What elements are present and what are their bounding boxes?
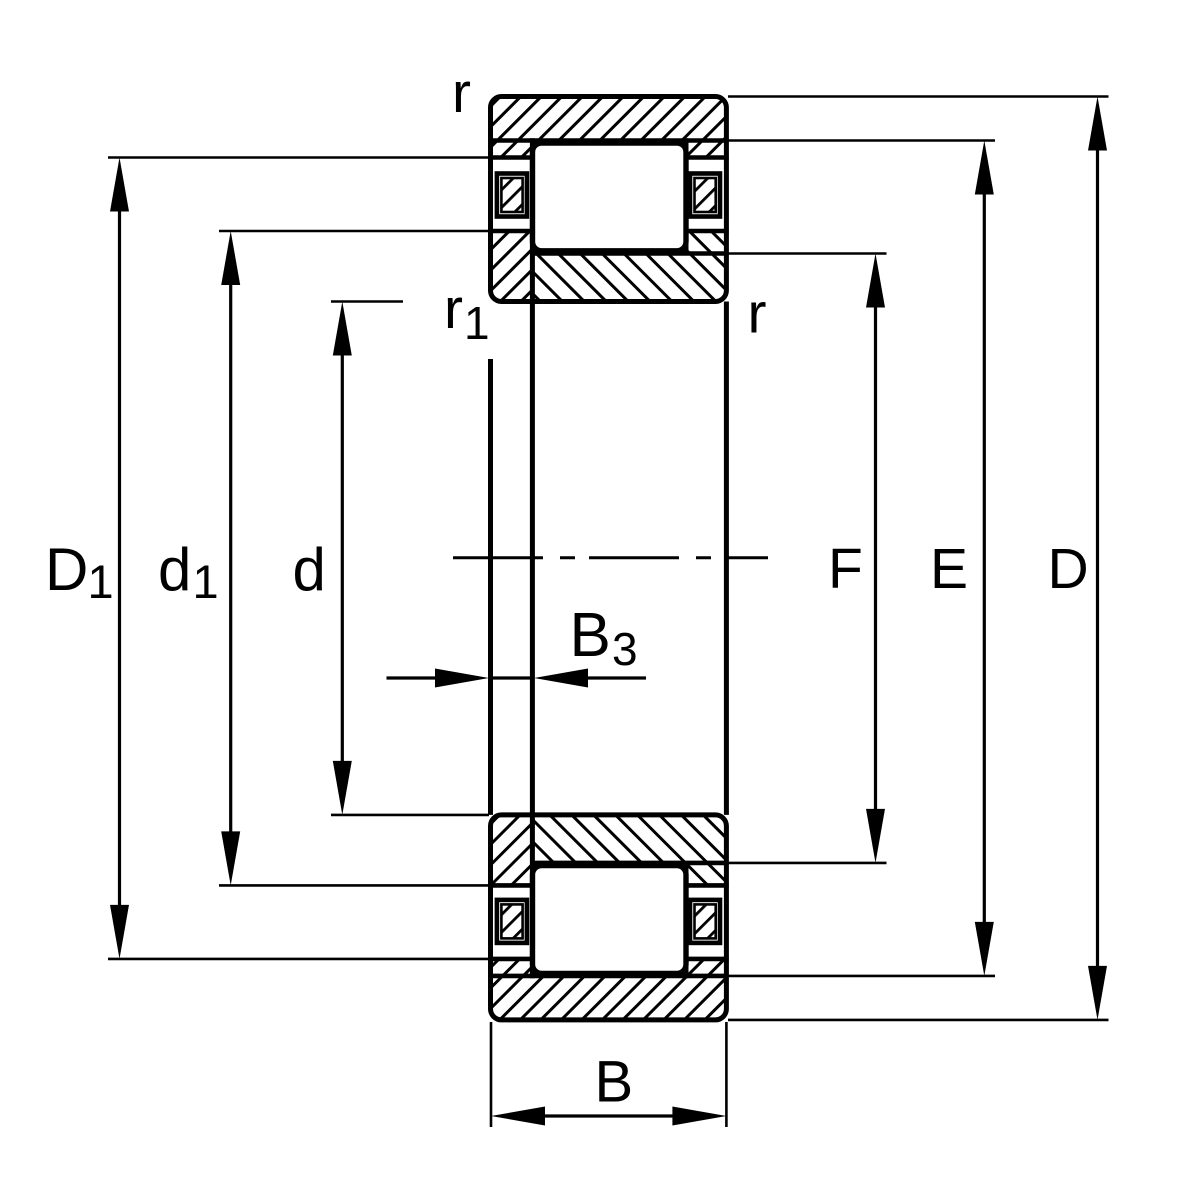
svg-text:1: 1 <box>193 555 219 608</box>
svg-text:1: 1 <box>464 297 490 349</box>
svg-text:B: B <box>570 601 611 670</box>
svg-text:F: F <box>828 537 863 601</box>
svg-text:d: d <box>158 536 191 603</box>
svg-text:D: D <box>45 536 88 603</box>
svg-text:1: 1 <box>88 555 114 608</box>
svg-text:3: 3 <box>612 623 638 675</box>
svg-text:r: r <box>748 282 767 346</box>
svg-text:D: D <box>1048 537 1089 601</box>
svg-text:B: B <box>595 1050 634 1115</box>
svg-text:r: r <box>452 61 471 125</box>
svg-text:r: r <box>444 277 463 341</box>
svg-text:d: d <box>293 536 326 603</box>
svg-text:E: E <box>930 537 968 601</box>
